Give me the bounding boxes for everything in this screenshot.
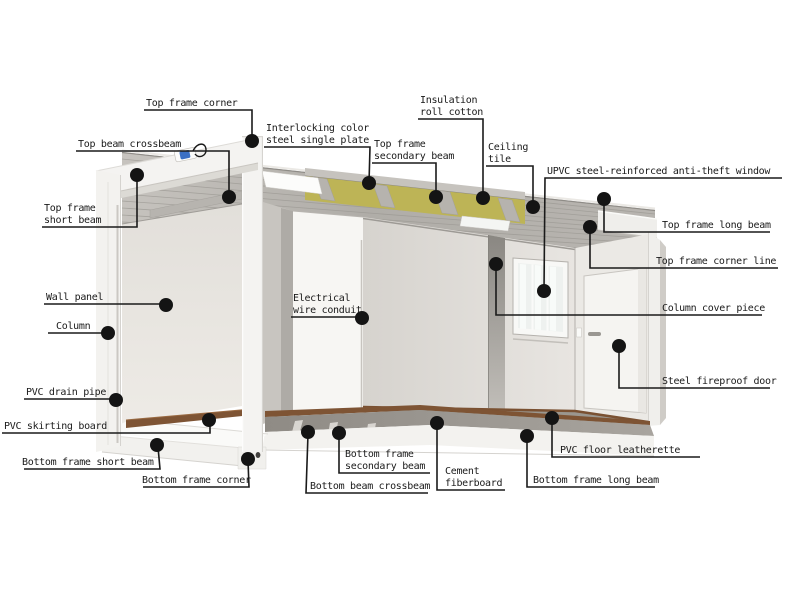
label-top-frame-corner: Top frame corner <box>146 98 238 109</box>
diagram-canvas: Top frame corner Top beam crossbeam Top … <box>0 0 800 600</box>
glass-light-band-2 <box>535 265 541 330</box>
label-upvc-window: UPVC steel-reinforced anti-theft window <box>547 166 771 177</box>
label-pvc-drain-pipe: PVC drain pipe <box>26 387 106 398</box>
label-bottom-secondary-1: Bottom frame <box>345 449 414 460</box>
label-top-secondary-1: Top frame <box>374 139 426 150</box>
anchor-dot <box>159 298 173 312</box>
label-column-cover-piece: Column cover piece <box>662 303 765 314</box>
label-electrical-1: Electrical <box>293 293 350 304</box>
corner-casting-hole-2 <box>256 452 261 458</box>
label-insulation-1: Insulation <box>420 95 477 106</box>
label-top-frame-long-beam: Top frame long beam <box>662 220 771 231</box>
label-top-secondary-2: secondary beam <box>374 151 454 162</box>
label-interlocking-2: steel single plate <box>266 135 369 146</box>
label-steel-fireproof-door: Steel fireproof door <box>662 376 777 387</box>
anchor-dot <box>612 339 626 353</box>
label-top-frame-short-beam-1: Top frame <box>44 203 96 214</box>
label-bottom-beam-crossbeam: Bottom beam crossbeam <box>310 481 430 492</box>
label-column: Column <box>56 321 91 332</box>
label-ceiling-tile-1: Ceiling <box>488 142 528 153</box>
glass-light-band-1 <box>520 264 526 329</box>
leader-line <box>144 110 252 141</box>
label-top-frame-short-beam-2: short beam <box>44 215 101 226</box>
anchor-dot <box>489 257 503 271</box>
anchor-dot <box>202 413 216 427</box>
door-handle <box>588 332 601 336</box>
anchor-dot <box>520 429 534 443</box>
anchor-dot <box>476 191 490 205</box>
label-wall-panel: Wall panel <box>46 292 103 303</box>
label-interlocking-1: Interlocking color <box>266 123 369 134</box>
glass-light-band-3 <box>550 267 556 332</box>
anchor-dot <box>583 220 597 234</box>
label-pvc-floor-leatherette: PVC floor leatherette <box>560 445 680 456</box>
anchor-dot <box>545 411 559 425</box>
anchor-dot <box>101 326 115 340</box>
anchor-dot <box>362 176 376 190</box>
container-house-parts-diagram: Top frame corner Top beam crossbeam Top … <box>0 0 800 600</box>
door-edge-shading <box>638 268 646 413</box>
anchor-dot <box>332 426 346 440</box>
label-bottom-secondary-2: secondary beam <box>345 461 425 472</box>
anchor-dot <box>526 200 540 214</box>
label-bottom-frame-short-beam: Bottom frame short beam <box>22 457 154 468</box>
module-gap-shadow <box>281 208 293 416</box>
corner-column <box>242 136 263 452</box>
label-insulation-2: roll cotton <box>420 107 483 118</box>
anchor-dot <box>245 134 259 148</box>
label-top-beam-crossbeam: Top beam crossbeam <box>78 139 181 150</box>
anchor-dot <box>430 416 444 430</box>
light-switch <box>577 328 582 337</box>
anchor-dot <box>130 168 144 182</box>
window <box>513 258 568 343</box>
label-cement-fiberboard-1: Cement <box>445 466 480 477</box>
label-ceiling-tile-2: tile <box>488 154 511 165</box>
anchor-dot <box>597 192 611 206</box>
anchor-dot <box>222 190 236 204</box>
label-pvc-skirting-board: PVC skirting board <box>4 421 107 432</box>
label-electrical-2: wire conduit <box>293 305 362 316</box>
anchor-dot <box>150 438 164 452</box>
anchor-dot <box>301 425 315 439</box>
label-top-frame-corner-line: Top frame corner line <box>656 256 776 267</box>
left-module-wall-panel <box>122 204 242 426</box>
anchor-dot <box>241 452 255 466</box>
anchor-dot <box>109 393 123 407</box>
label-bottom-frame-corner: Bottom frame corner <box>142 475 251 486</box>
label-cement-fiberboard-2: fiberboard <box>445 478 502 489</box>
label-bottom-frame-long-beam: Bottom frame long beam <box>533 475 659 486</box>
anchor-dot <box>537 284 551 298</box>
anchor-dot <box>429 190 443 204</box>
